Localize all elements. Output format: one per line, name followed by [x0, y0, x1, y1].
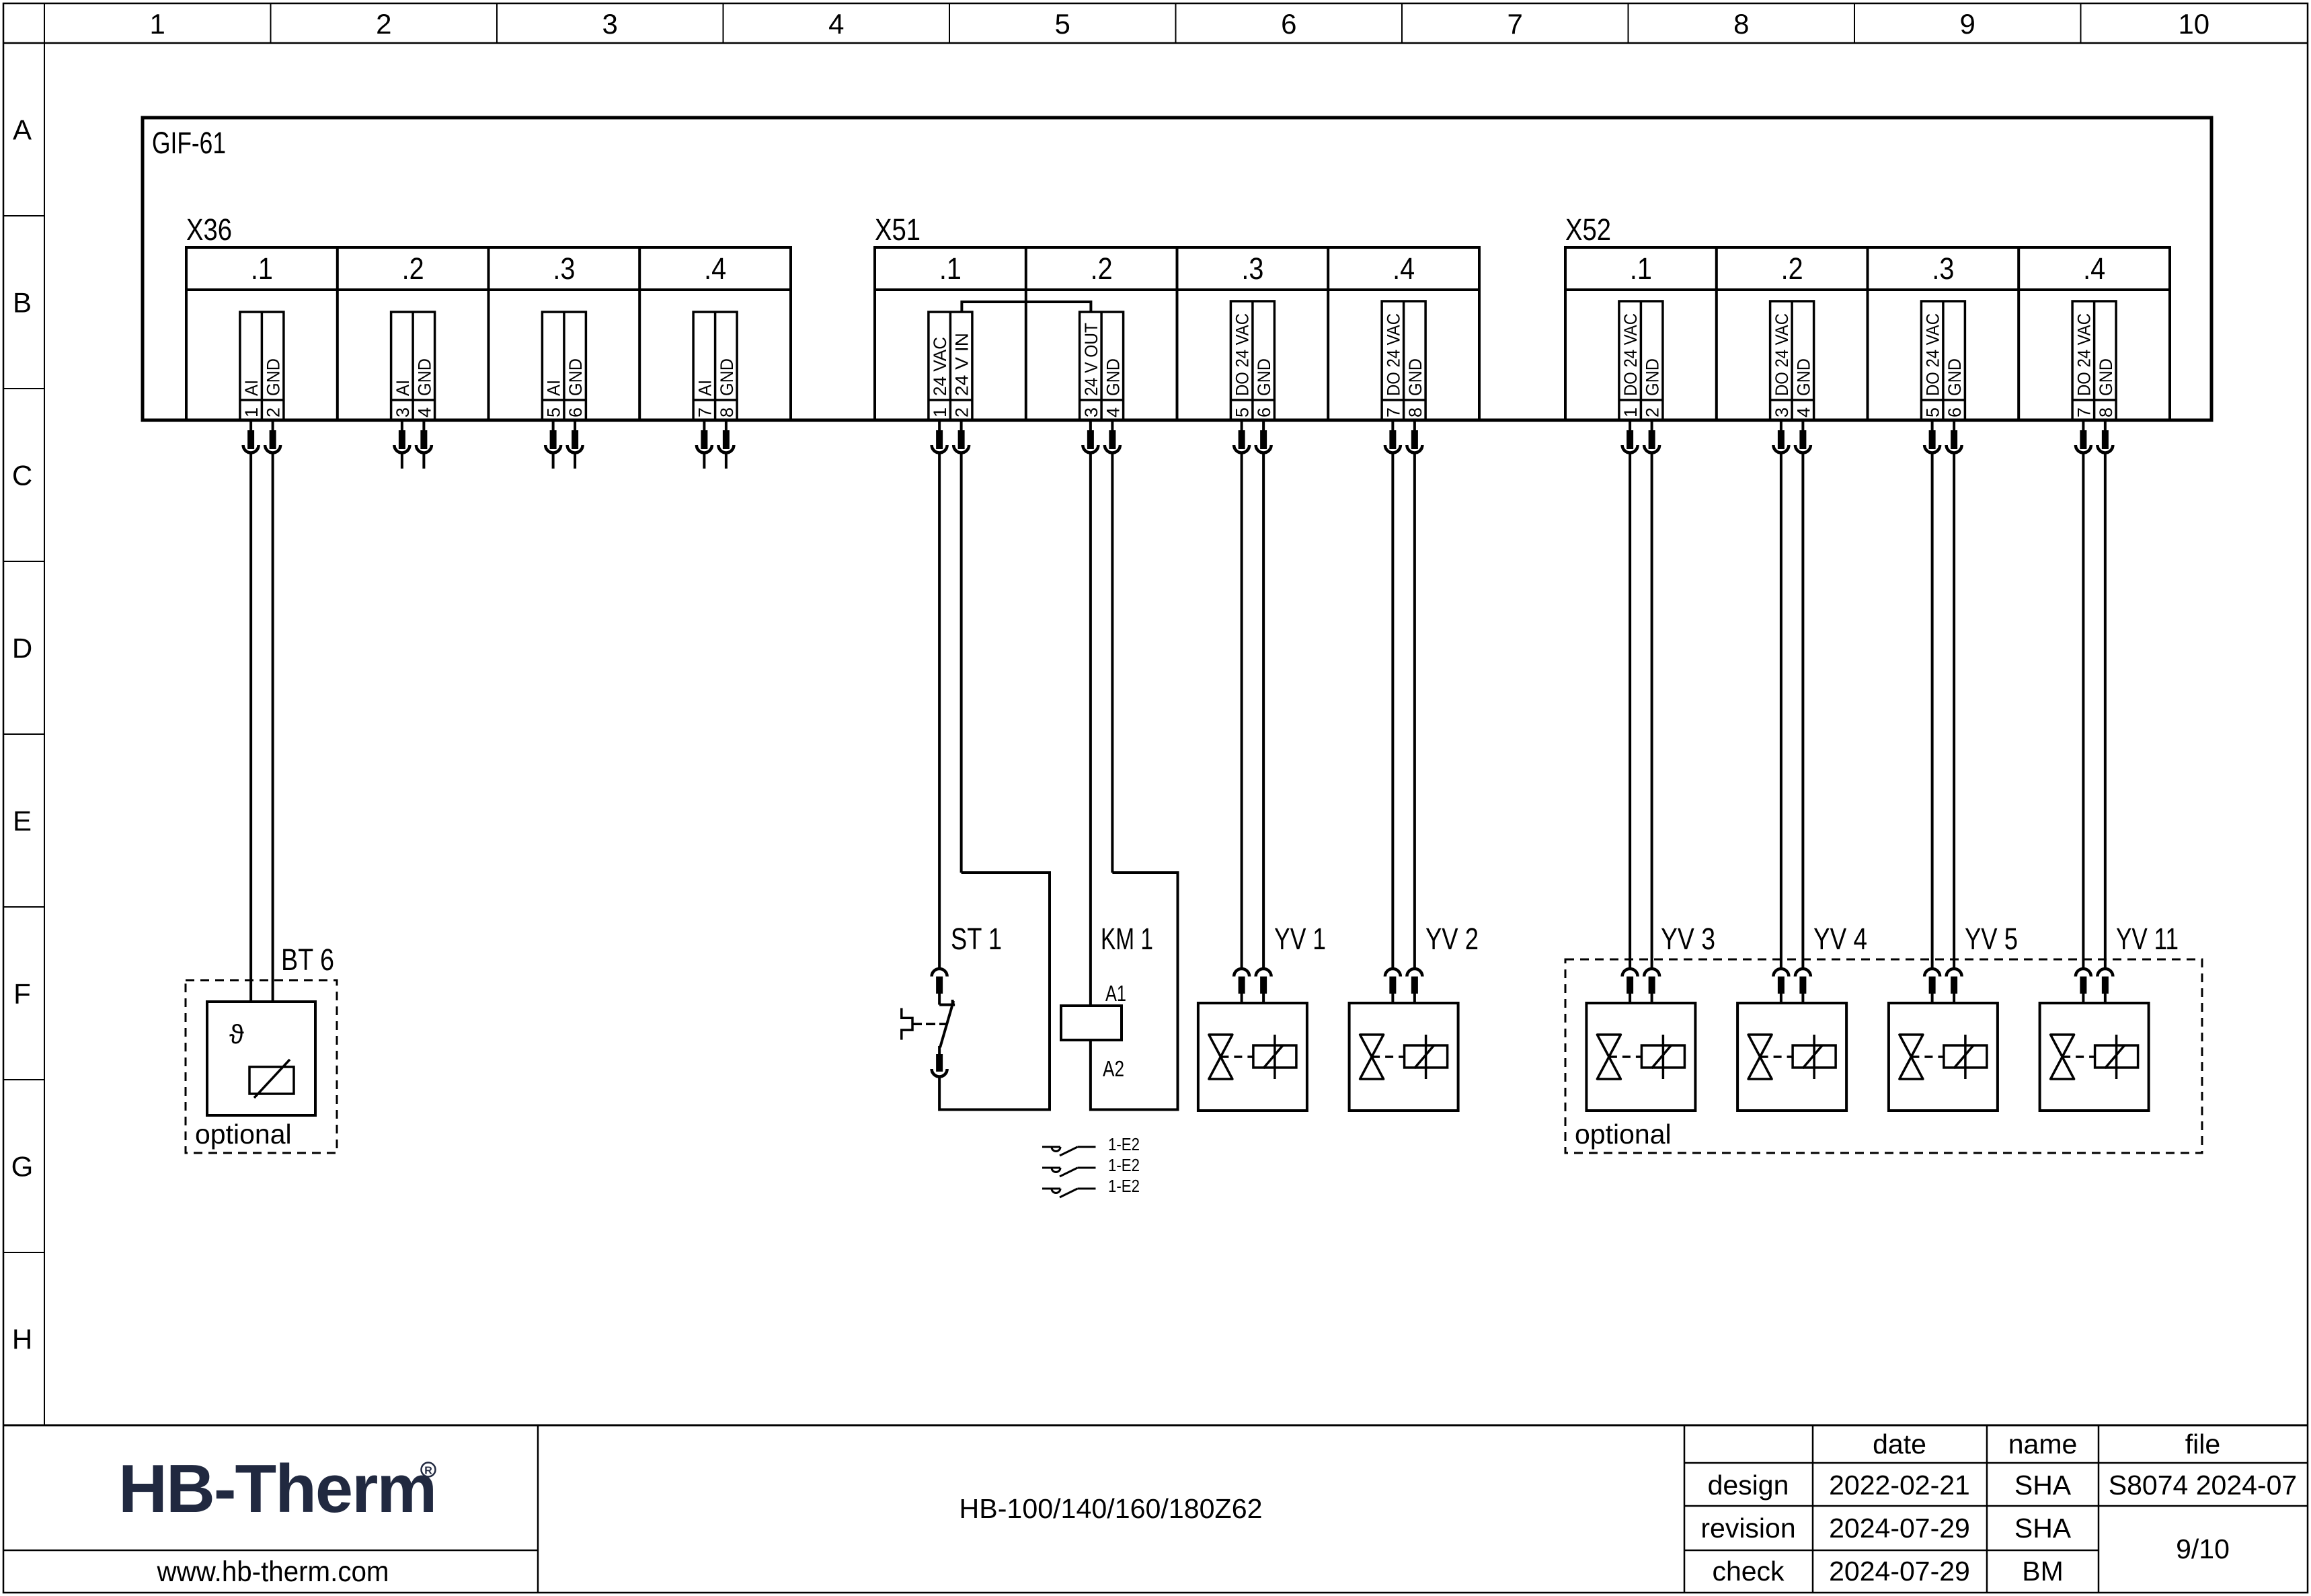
svg-text:24 V OUT: 24 V OUT — [1081, 323, 1101, 396]
svg-text:X36: X36 — [186, 212, 232, 247]
svg-text:E: E — [13, 805, 32, 837]
svg-text:F: F — [13, 978, 31, 1010]
svg-text:7: 7 — [2074, 407, 2094, 417]
svg-text:7: 7 — [1383, 407, 1403, 417]
svg-text:GND: GND — [2096, 358, 2116, 396]
svg-text:7: 7 — [1507, 8, 1523, 40]
svg-text:HB-Therm: HB-Therm — [118, 1451, 436, 1527]
svg-text:GND: GND — [1643, 358, 1663, 396]
svg-text:X51: X51 — [875, 212, 921, 247]
svg-text:GND: GND — [565, 358, 586, 396]
svg-text:R: R — [424, 1466, 432, 1477]
svg-text:.2: .2 — [1781, 251, 1803, 286]
svg-text:2024-07-29: 2024-07-29 — [1829, 1556, 1970, 1587]
svg-text:.1: .1 — [939, 251, 962, 286]
svg-text:2: 2 — [952, 407, 972, 417]
svg-text:check: check — [1712, 1556, 1785, 1587]
svg-text:AI: AI — [241, 380, 262, 396]
svg-text:A2: A2 — [1103, 1056, 1124, 1081]
svg-text:3: 3 — [1772, 407, 1792, 417]
svg-text:4: 4 — [828, 8, 844, 40]
svg-text:YV 11: YV 11 — [2116, 922, 2179, 956]
svg-text:.2: .2 — [1091, 251, 1113, 286]
svg-text:.4: .4 — [2083, 251, 2105, 286]
svg-text:5: 5 — [1232, 407, 1253, 417]
svg-text:H: H — [12, 1324, 32, 1355]
svg-text:.4: .4 — [704, 251, 726, 286]
svg-text:7: 7 — [695, 407, 715, 417]
svg-text:AI: AI — [544, 380, 564, 396]
svg-text:DO 24 VAC: DO 24 VAC — [1232, 313, 1253, 396]
svg-text:GND: GND — [1945, 358, 1965, 396]
svg-text:DO 24 VAC: DO 24 VAC — [1383, 313, 1403, 396]
svg-text:2024-07-29: 2024-07-29 — [1829, 1513, 1970, 1544]
svg-text:6: 6 — [565, 407, 586, 417]
svg-text:ST 1: ST 1 — [951, 922, 1002, 956]
svg-text:GND: GND — [1405, 358, 1425, 396]
svg-text:file: file — [2185, 1429, 2220, 1460]
svg-text:10: 10 — [2178, 8, 2209, 40]
svg-text:X52: X52 — [1565, 212, 1611, 247]
svg-text:G: G — [11, 1151, 34, 1183]
svg-text:KM 1: KM 1 — [1101, 922, 1153, 956]
svg-text:C: C — [12, 460, 32, 491]
svg-text:3: 3 — [1081, 407, 1101, 417]
svg-text:24 VAC: 24 VAC — [930, 337, 950, 396]
svg-text:4: 4 — [1793, 407, 1813, 417]
svg-text:5: 5 — [544, 407, 564, 417]
svg-text:B: B — [13, 287, 32, 319]
svg-text:GND: GND — [264, 358, 284, 396]
svg-text:1: 1 — [241, 407, 262, 417]
svg-text:DO 24 VAC: DO 24 VAC — [1923, 313, 1943, 396]
svg-text:DO 24 VAC: DO 24 VAC — [1620, 313, 1641, 396]
svg-text:2022-02-21: 2022-02-21 — [1829, 1470, 1970, 1501]
svg-text:GND: GND — [1103, 358, 1123, 396]
svg-text:1-E2: 1-E2 — [1108, 1155, 1140, 1175]
svg-text:3: 3 — [602, 8, 618, 40]
svg-text:8: 8 — [717, 407, 737, 417]
svg-text:S8074 2024-07: S8074 2024-07 — [2109, 1470, 2297, 1501]
svg-text:8: 8 — [1733, 8, 1749, 40]
svg-text:BT 6: BT 6 — [281, 943, 334, 977]
svg-text:5: 5 — [1055, 8, 1070, 40]
svg-text:GND: GND — [1793, 358, 1813, 396]
svg-text:1-E2: 1-E2 — [1108, 1134, 1140, 1154]
svg-text:A: A — [13, 114, 32, 146]
svg-text:2: 2 — [264, 407, 284, 417]
svg-text:D: D — [12, 633, 32, 664]
svg-text:AI: AI — [695, 380, 715, 396]
svg-text:DO 24 VAC: DO 24 VAC — [2074, 313, 2094, 396]
svg-text:4: 4 — [414, 407, 434, 417]
svg-text:BM: BM — [2022, 1556, 2064, 1587]
svg-text:GND: GND — [414, 358, 434, 396]
svg-text:6: 6 — [1281, 8, 1296, 40]
svg-text:1: 1 — [930, 407, 950, 417]
svg-text:3: 3 — [393, 407, 413, 417]
svg-text:ϑ: ϑ — [229, 1020, 244, 1049]
svg-text:8: 8 — [1405, 407, 1425, 417]
svg-text:YV 2: YV 2 — [1425, 922, 1479, 956]
svg-text:6: 6 — [1254, 407, 1274, 417]
svg-text:YV 3: YV 3 — [1661, 922, 1715, 956]
svg-text:AI: AI — [393, 380, 413, 396]
svg-text:GND: GND — [717, 358, 737, 396]
svg-text:YV 4: YV 4 — [1813, 922, 1867, 956]
svg-text:.3: .3 — [1932, 251, 1954, 286]
svg-text:5: 5 — [1923, 407, 1943, 417]
svg-text:A1: A1 — [1105, 981, 1126, 1006]
svg-text:1: 1 — [1620, 407, 1641, 417]
svg-text:4: 4 — [1103, 407, 1123, 417]
svg-text:2: 2 — [1643, 407, 1663, 417]
svg-text:GND: GND — [1254, 358, 1274, 396]
svg-text:GIF-61: GIF-61 — [152, 126, 226, 160]
svg-text:optional: optional — [195, 1119, 292, 1150]
svg-text:.1: .1 — [251, 251, 273, 286]
svg-text:1-E2: 1-E2 — [1108, 1176, 1140, 1196]
svg-text:6: 6 — [1945, 407, 1965, 417]
svg-text:.3: .3 — [1241, 251, 1263, 286]
svg-text:1: 1 — [150, 8, 165, 40]
svg-text:.4: .4 — [1393, 251, 1415, 286]
svg-text:DO 24 VAC: DO 24 VAC — [1772, 313, 1792, 396]
svg-text:YV 5: YV 5 — [1965, 922, 2018, 956]
svg-text:.2: .2 — [402, 251, 424, 286]
svg-text:revision: revision — [1700, 1513, 1795, 1544]
svg-text:date: date — [1873, 1429, 1926, 1460]
svg-text:.1: .1 — [1630, 251, 1652, 286]
svg-text:optional: optional — [1575, 1119, 1672, 1150]
svg-text:9/10: 9/10 — [2176, 1533, 2230, 1564]
svg-text:SHA: SHA — [2014, 1470, 2072, 1501]
svg-text:2: 2 — [376, 8, 391, 40]
svg-text:YV 1: YV 1 — [1274, 922, 1326, 956]
svg-text:name: name — [2008, 1429, 2078, 1460]
svg-text:design: design — [1708, 1470, 1789, 1501]
svg-text:HB-100/140/160/180Z62: HB-100/140/160/180Z62 — [959, 1493, 1263, 1524]
svg-text:8: 8 — [2096, 407, 2116, 417]
svg-text:24 V IN: 24 V IN — [952, 333, 972, 396]
svg-text:.3: .3 — [553, 251, 575, 286]
svg-text:9: 9 — [1960, 8, 1975, 40]
svg-text:SHA: SHA — [2014, 1513, 2072, 1544]
svg-text:www.hb-therm.com: www.hb-therm.com — [157, 1556, 389, 1588]
